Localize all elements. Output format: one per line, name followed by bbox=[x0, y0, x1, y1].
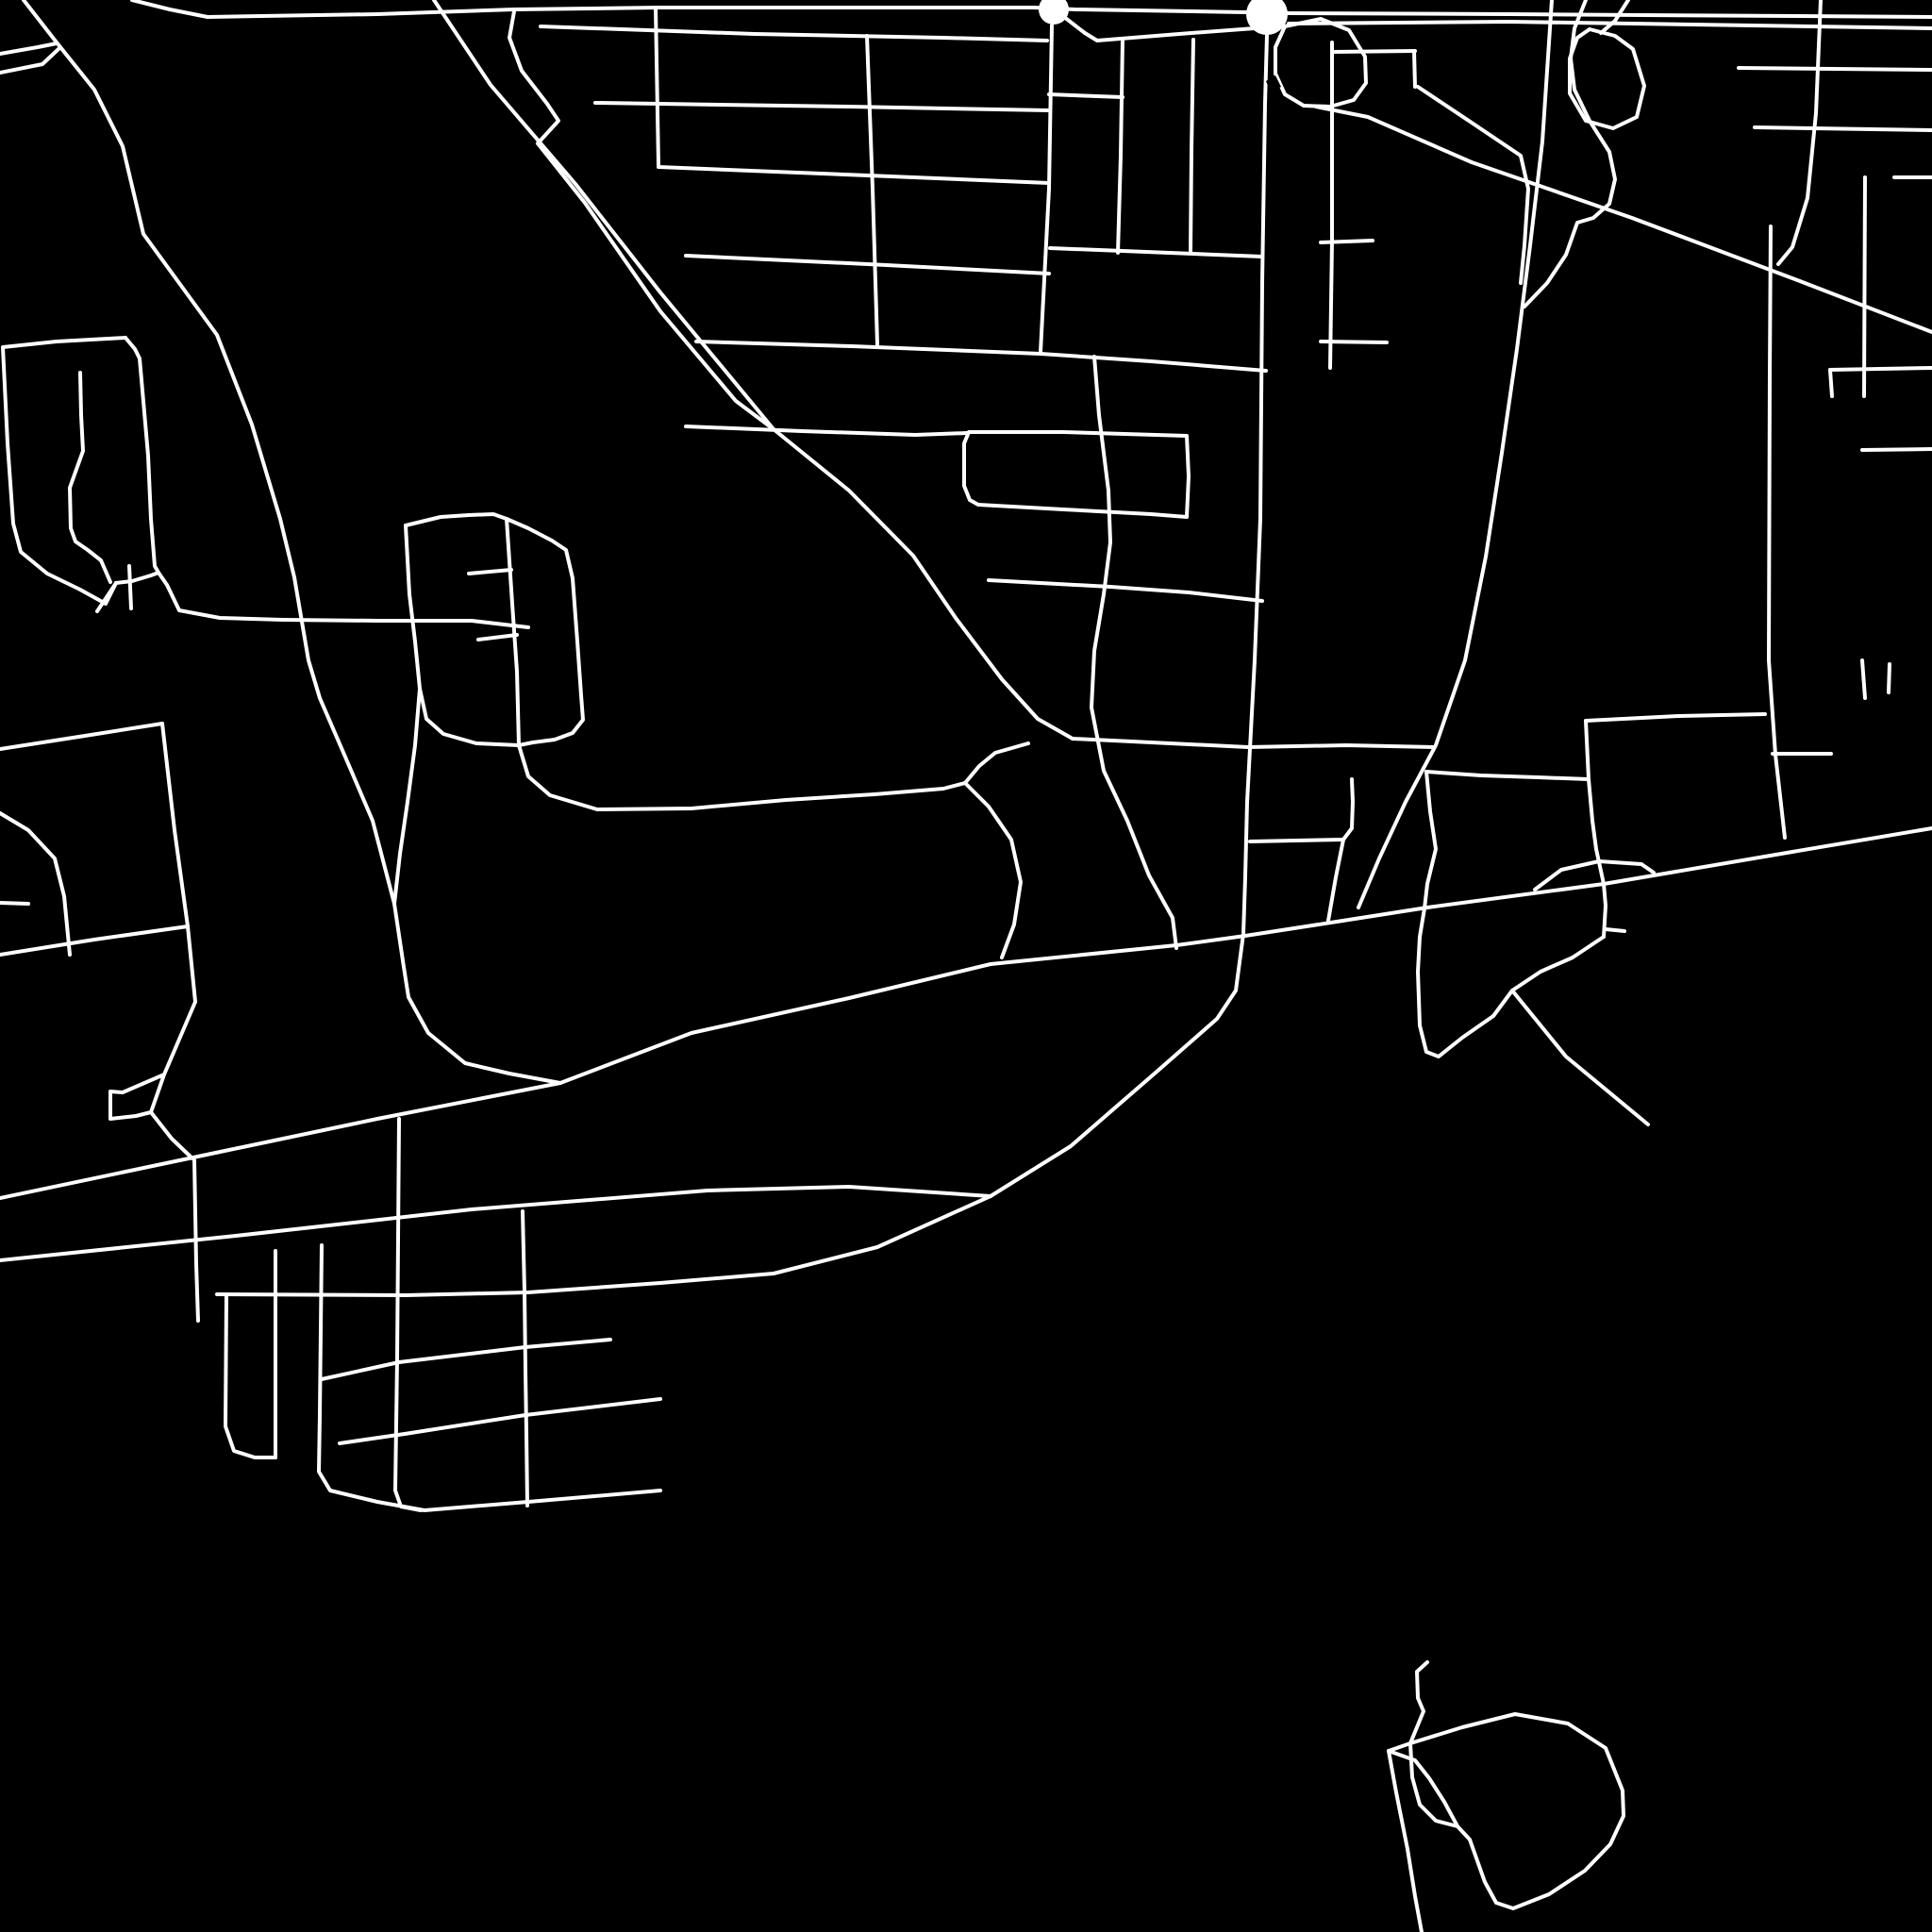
road-heart-short-spur bbox=[1606, 929, 1624, 931]
road-ne-street-r363 bbox=[1321, 341, 1387, 342]
road-ne-street-v1 bbox=[1330, 42, 1332, 368]
road-east-row-390 bbox=[1830, 368, 1932, 370]
road-ne-street-v2 bbox=[1414, 51, 1415, 87]
road-far-ne-row-72 bbox=[1739, 68, 1932, 70]
road-ne-street-r255 bbox=[1321, 241, 1373, 242]
map-background bbox=[0, 0, 1932, 1932]
road-cross-segment bbox=[129, 566, 131, 608]
road-stub-2003 bbox=[1889, 664, 1890, 692]
road-east-vertical-1977 bbox=[1864, 177, 1865, 396]
road-east-l-390 bbox=[1830, 370, 1832, 396]
road-left-short bbox=[0, 903, 28, 904]
map-viewport[interactable] bbox=[0, 0, 1932, 1932]
map-canvas[interactable] bbox=[0, 0, 1932, 1932]
road-ne-street-stub bbox=[1332, 51, 1415, 52]
road-east-row-477 bbox=[1862, 449, 1932, 450]
